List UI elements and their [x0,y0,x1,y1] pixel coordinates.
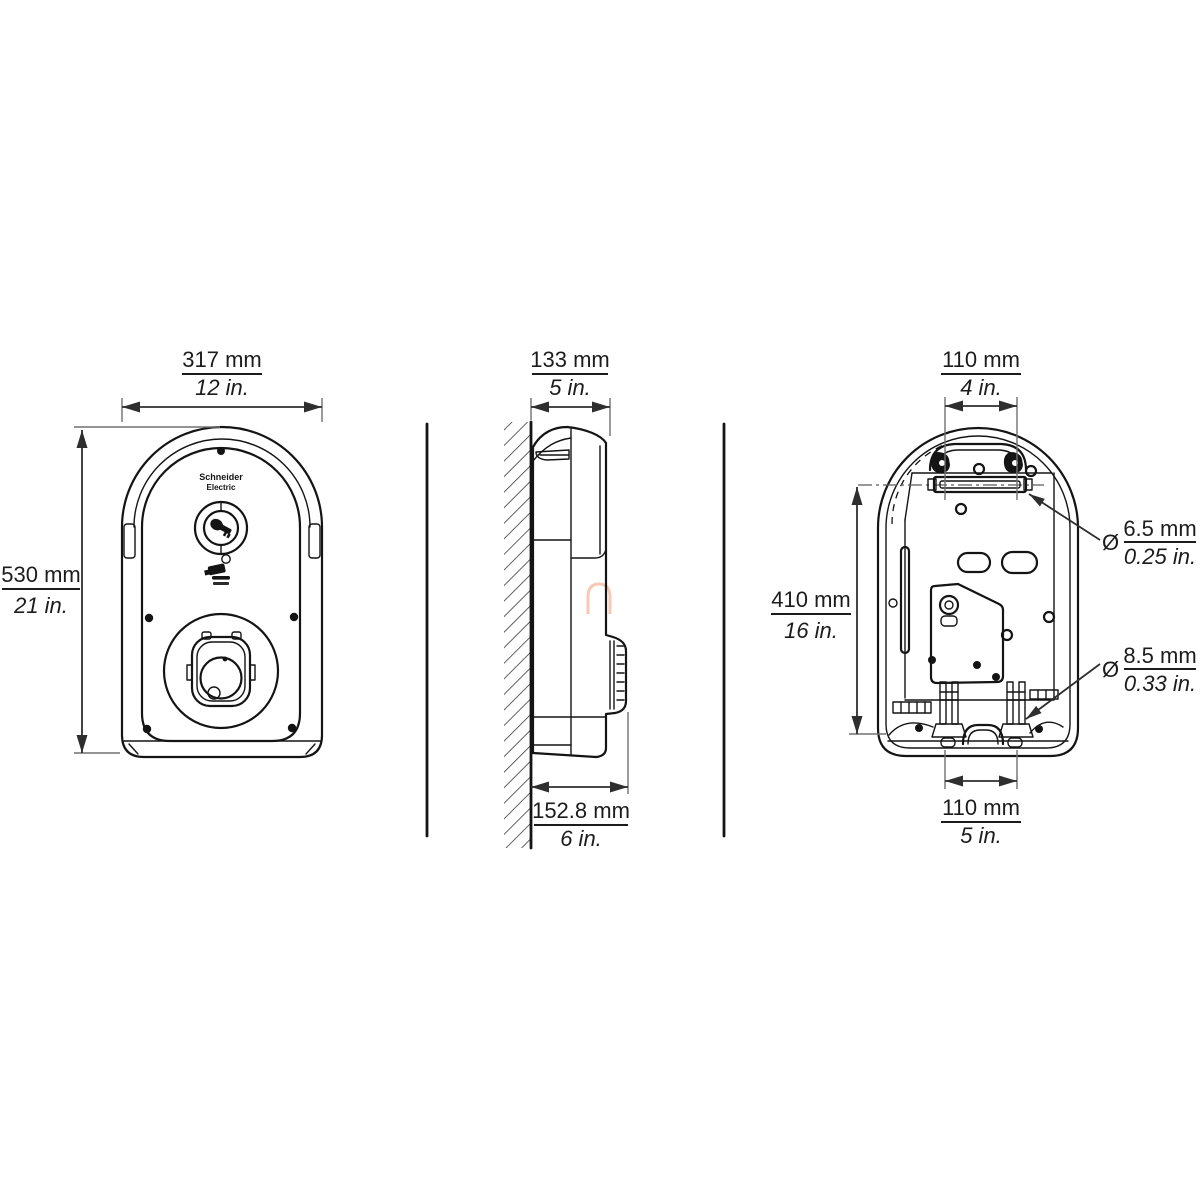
wall-section-hatch [504,422,531,848]
dim-front-height-metric: 530 mm [1,562,80,587]
logo-line1: Schneider [199,472,243,482]
screw-hole [956,504,966,514]
dim-side-depth-bottom-metric: 152.8 mm [532,798,630,823]
diameter-symbol: Ø [1102,530,1119,555]
front-width-dimension: 317 mm 12 in. [122,347,322,422]
dim-rear-bottom-hole-metric: 8.5 mm [1123,643,1196,668]
screw-hole [217,447,225,455]
dim-side-depth-top-metric: 133 mm [530,347,609,372]
drawing-canvas: Schneider Electric [0,0,1200,1200]
dim-rear-top-spacing-metric: 110 mm [942,347,1020,372]
dim-rear-top-hole-imperial: 0.25 in. [1124,544,1196,569]
dim-rear-height-imperial: 16 in. [784,618,838,643]
screw-hole [290,613,298,621]
rear-view: 110 mm 4 in. 410 mm 16 in. 110 mm 5 in. … [771,347,1197,848]
oval-slot-right [1002,552,1037,573]
junction-panel [928,584,1003,683]
socket-bulge [610,641,624,709]
schneider-logo: Schneider Electric [199,472,243,492]
front-view: Schneider Electric [1,347,322,757]
leader-line [1029,494,1100,540]
dim-rear-top-spacing-imperial: 4 in. [960,375,1002,400]
side-cover-bottom [571,549,606,558]
technical-drawing: Schneider Electric [0,0,1200,1200]
dim-front-height-imperial: 21 in. [13,593,68,618]
rear-height-dimension: 410 mm 16 in. [771,487,886,734]
logo-line2: Electric [207,483,236,492]
side-profile [533,427,626,757]
dim-rear-bottom-hole-imperial: 0.33 in. [1124,671,1196,696]
dim-rear-bottom-spacing-metric: 110 mm [942,795,1020,820]
rear-bottom-spacing-dimension: 110 mm 5 in. [941,750,1021,848]
dim-rear-bottom-spacing-imperial: 5 in. [960,823,1002,848]
screw-hole [1044,612,1054,622]
dim-front-width-metric: 317 mm [182,347,261,372]
dim-side-depth-top-imperial: 5 in. [549,375,591,400]
dim-rear-top-hole-metric: 6.5 mm [1123,516,1196,541]
screw-hole [1026,466,1036,476]
rear-bottom-hole-callout: Ø 8.5 mm 0.33 in. [1026,643,1197,719]
screw-hole [143,725,151,733]
oval-slot-left [958,553,990,572]
dim-rear-height-metric: 410 mm [771,587,850,612]
charging-socket [164,614,278,728]
front-height-dimension: 530 mm 21 in. [1,427,220,753]
latch-tab-right [309,524,320,558]
latch-tab-left [124,524,135,558]
bottom-keyhole-right [1008,738,1022,747]
bottom-slot-left [940,682,946,724]
key-glyph [208,517,234,539]
screw-hole [288,724,296,732]
dim-side-depth-bottom-imperial: 6 in. [560,826,602,851]
bottom-slot-right [1007,682,1013,724]
screw-hole [145,614,153,622]
side-depth-top-dimension: 133 mm 5 in. [530,347,610,436]
leader-line [1026,664,1100,719]
bottom-mounts [889,682,1063,747]
bottom-keyhole-left [941,738,955,747]
rear-inner-shell [886,436,1070,748]
side-depth-bottom-dimension: 152.8 mm 6 in. [531,712,630,851]
cable-gland [940,596,958,614]
diameter-symbol: Ø [1102,657,1119,682]
key-switch-icon [195,502,247,554]
ev-charging-icon [204,555,231,585]
dim-front-width-imperial: 12 in. [195,375,249,400]
